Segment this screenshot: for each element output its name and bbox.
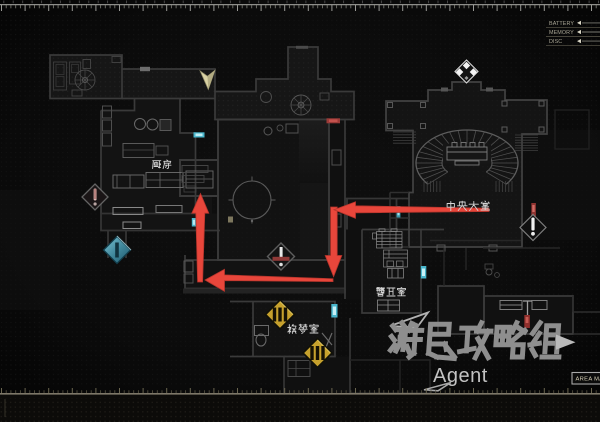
svg-text:BATTERY: BATTERY <box>549 21 574 27</box>
svg-text:AREA MAP: AREA MAP <box>576 377 600 383</box>
svg-text:MEMORY: MEMORY <box>549 30 574 36</box>
svg-text:DISC: DISC <box>549 39 562 45</box>
svg-text:Agent: Agent <box>433 365 488 387</box>
